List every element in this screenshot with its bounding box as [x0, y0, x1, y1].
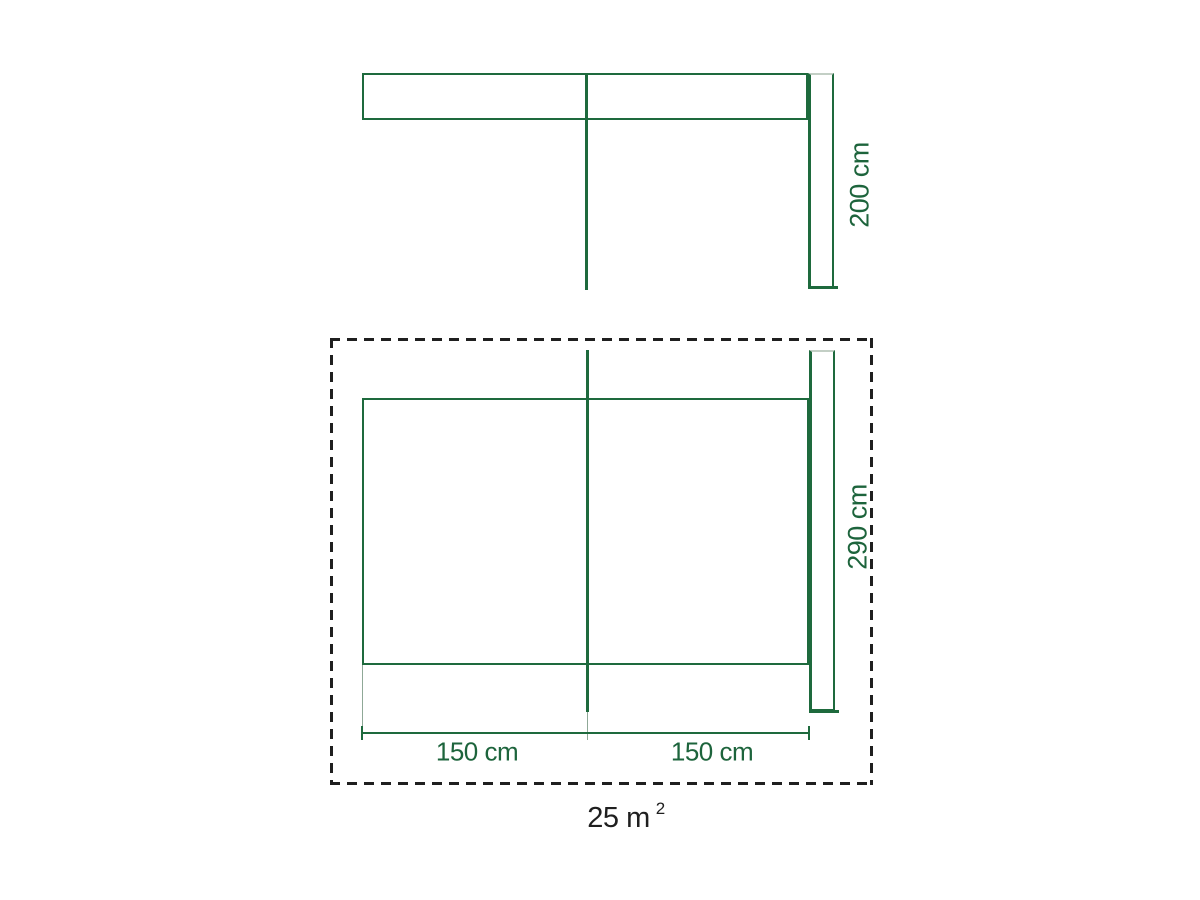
area-value: 25 m	[587, 802, 649, 834]
floor-plan-height-bar-bottom-tick	[809, 710, 839, 713]
area-superscript: 2	[656, 799, 665, 818]
width-label-right: 150 cm	[671, 737, 753, 768]
center-extension-line	[587, 712, 588, 740]
dimension-diagram: 200 cm 150 cm 150 cm 290 cm 25	[0, 0, 1200, 900]
width-label-left: 150 cm	[436, 737, 518, 768]
side-view-height-label: 200 cm	[845, 142, 876, 228]
width-dimension-line	[362, 732, 809, 734]
footprint-dashed-top	[330, 338, 873, 341]
side-view-figure: 200 cm	[0, 0, 1200, 310]
width-dimension-right-tick	[808, 726, 810, 740]
floor-plan-height-bar	[809, 350, 835, 712]
floor-plan-height-label: 290 cm	[843, 484, 874, 570]
side-view-center-support-line	[585, 73, 588, 290]
width-dimension-left-tick	[361, 726, 363, 740]
footprint-dashed-bottom	[330, 782, 873, 785]
side-view-height-bar-bottom-tick	[808, 286, 838, 289]
footprint-dashed-left	[330, 338, 333, 785]
area-label: 25 m2	[587, 801, 664, 835]
floor-plan-center-divider-line	[586, 350, 589, 712]
floor-plan-figure: 150 cm 150 cm 290 cm	[0, 320, 1200, 800]
side-view-height-bar	[808, 73, 834, 289]
